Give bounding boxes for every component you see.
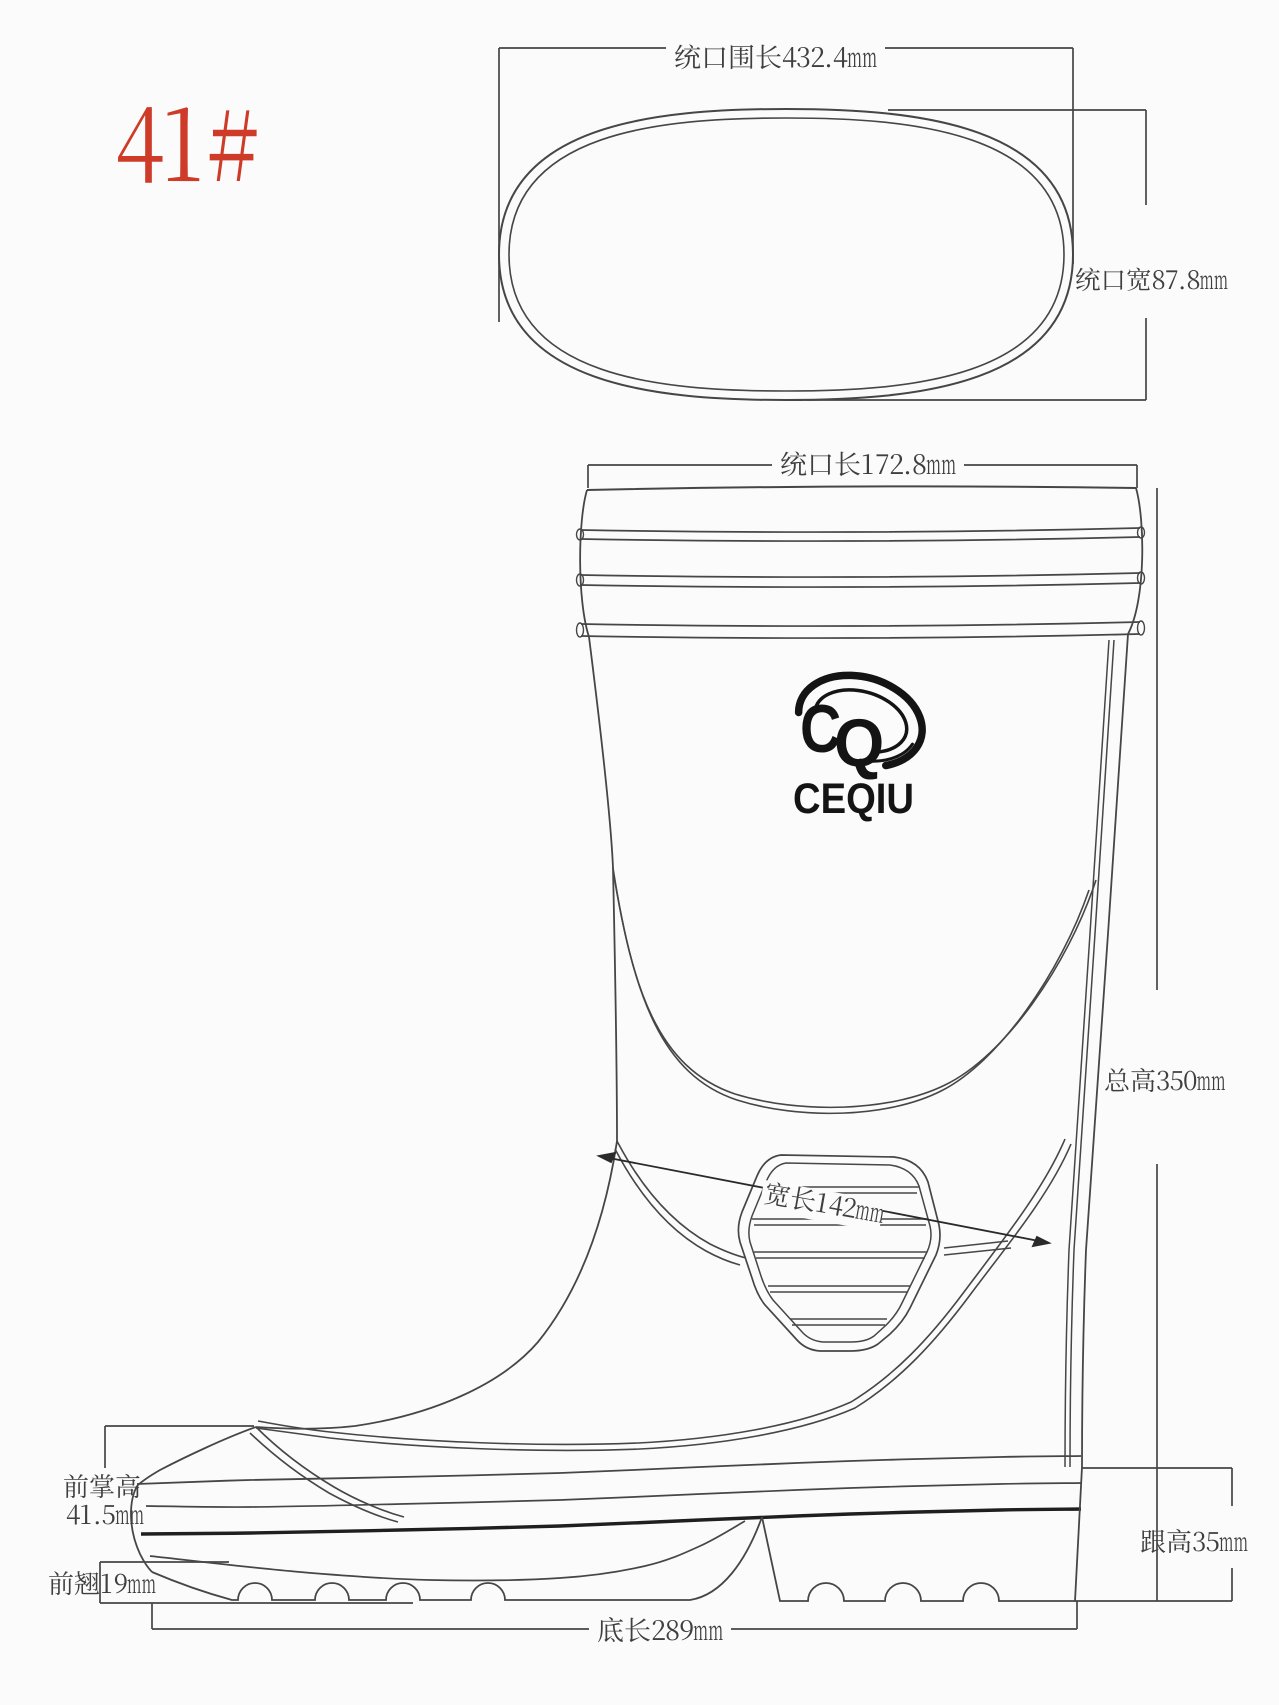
svg-text:Q: Q	[834, 706, 884, 782]
svg-text:CEQIU: CEQIU	[793, 775, 914, 823]
